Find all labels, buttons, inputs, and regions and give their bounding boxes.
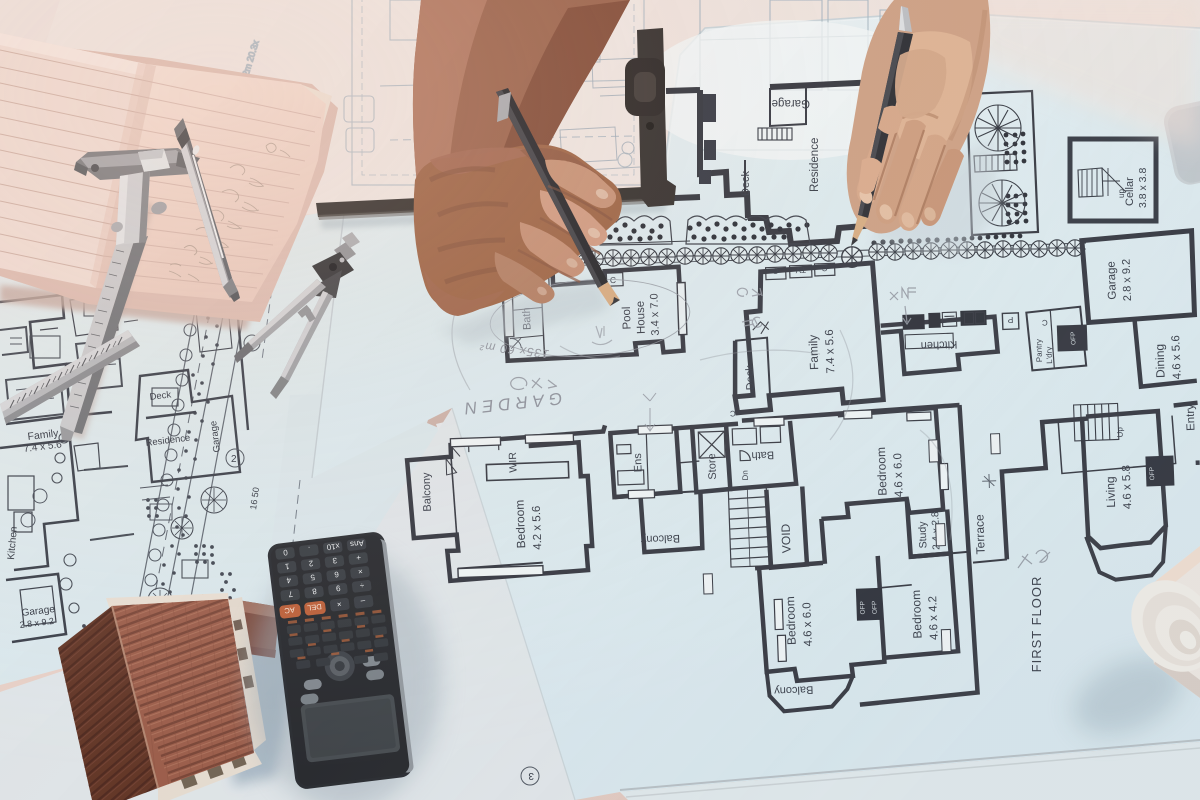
svg-text:4.6 x 4.2: 4.6 x 4.2	[927, 596, 941, 641]
svg-text:Garage: Garage	[1106, 261, 1119, 300]
svg-text:Garage: Garage	[772, 97, 810, 109]
svg-text:C: C	[772, 266, 778, 275]
svg-text:Study: Study	[917, 521, 930, 549]
svg-text:4.6 x 6.0: 4.6 x 6.0	[892, 453, 906, 498]
svg-text:4.6 x 5.8: 4.6 x 5.8	[1121, 465, 1135, 510]
svg-text:Ens: Ens	[632, 453, 645, 473]
svg-text:VOID: VOID	[779, 523, 794, 553]
svg-text:OFP: OFP	[1070, 331, 1077, 345]
svg-text:x10: x10	[326, 541, 340, 552]
svg-text:4.6 x 6.0: 4.6 x 6.0	[801, 602, 815, 647]
svg-text:4.6 x 5.6: 4.6 x 5.6	[1170, 335, 1184, 380]
svg-text:Dn: Dn	[741, 470, 750, 481]
svg-text:Kitchen: Kitchen	[920, 338, 957, 351]
svg-text:L'dry: L'dry	[1045, 347, 1055, 364]
svg-text:7.4 x 5.6: 7.4 x 5.6	[824, 329, 838, 374]
svg-text:3.4 x 7.0: 3.4 x 7.0	[648, 293, 661, 336]
svg-text:3.8 x 3.8: 3.8 x 3.8	[1137, 168, 1149, 208]
svg-text:FIRST FLOOR: FIRST FLOOR	[1029, 576, 1044, 673]
svg-text:4.2 x 5.6: 4.2 x 5.6	[531, 505, 545, 550]
svg-text:WIR: WIR	[507, 452, 520, 473]
svg-text:Entry: Entry	[1185, 404, 1198, 431]
svg-text:P: P	[1007, 315, 1013, 325]
svg-text:Deck: Deck	[740, 170, 752, 196]
svg-text:Dining: Dining	[1152, 344, 1167, 378]
svg-text:Balcony: Balcony	[774, 683, 814, 696]
svg-text:C: C	[1042, 318, 1048, 327]
svg-text:Residence: Residence	[809, 138, 821, 192]
svg-text:Bedroom: Bedroom	[874, 447, 890, 496]
svg-text:TV: TV	[795, 265, 806, 274]
svg-text:Up: Up	[1115, 426, 1124, 437]
svg-text:3: 3	[528, 770, 534, 781]
svg-text:Cellar: Cellar	[1124, 177, 1136, 206]
svg-text:Store: Store	[706, 453, 719, 480]
svg-text:Bath: Bath	[751, 448, 774, 461]
svg-text:Living: Living	[1103, 476, 1118, 508]
svg-text:Bedroom: Bedroom	[513, 499, 529, 548]
svg-text:C: C	[730, 409, 736, 418]
svg-text:DEL: DEL	[307, 602, 323, 613]
svg-text:House: House	[635, 301, 648, 335]
svg-text:Terrace: Terrace	[972, 514, 987, 555]
svg-text:C: C	[821, 264, 827, 273]
svg-text:OFP: OFP	[871, 601, 878, 615]
svg-text:Balcony: Balcony	[421, 472, 434, 512]
svg-text:OFP: OFP	[859, 601, 866, 615]
svg-text:2.8 x 9.2: 2.8 x 9.2	[1121, 259, 1134, 302]
svg-text:Bedroom: Bedroom	[909, 590, 925, 639]
svg-text:Ans: Ans	[350, 538, 365, 549]
svg-text:Pantry: Pantry	[1034, 339, 1044, 362]
svg-text:Deck: Deck	[744, 365, 757, 391]
svg-text:AC: AC	[283, 605, 295, 615]
svg-text:C: C	[610, 275, 616, 285]
svg-text:OFP: OFP	[1149, 467, 1156, 481]
svg-text:Balcony: Balcony	[640, 532, 680, 545]
svg-text:2: 2	[231, 454, 237, 465]
svg-text:Pool: Pool	[621, 306, 634, 329]
